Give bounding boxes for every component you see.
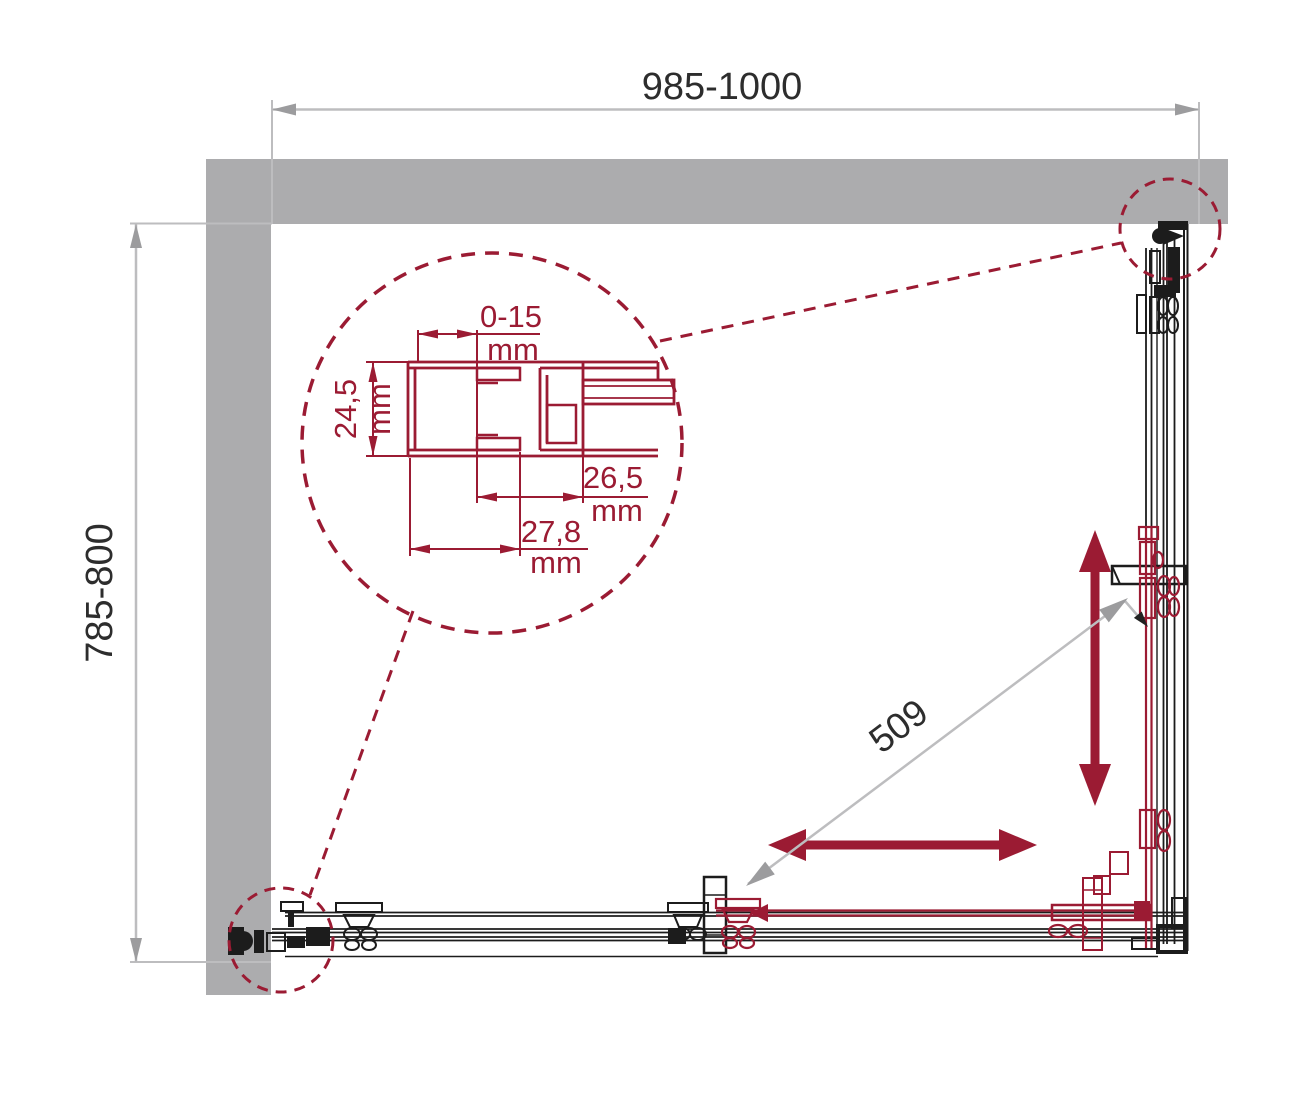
detail-dim-offset-b: 27,8 mm (410, 452, 588, 580)
depth-dimension-label: 785-800 (79, 523, 121, 662)
detail-depth-value: 24,5 (328, 379, 363, 439)
fixed-panel-right (1112, 221, 1188, 952)
walls (206, 159, 1228, 995)
roller-front-left (306, 903, 382, 950)
door-corner-hardware (1049, 878, 1150, 950)
diagonal-arrow-lower (746, 862, 775, 886)
roller-door-right-lower (1140, 810, 1170, 851)
profile-detail-drawing (408, 362, 674, 456)
detail-offset-b-value: 27,8 (521, 514, 581, 549)
detail-offset-b-unit: mm (530, 545, 582, 580)
detail-offset-a-value: 26,5 (583, 460, 643, 495)
diagonal-arrow-upper (1099, 598, 1128, 622)
wall-left (206, 224, 271, 995)
slide-direction-arrow-horizontal (768, 829, 1037, 861)
corner-hardware-top-right (1150, 221, 1188, 297)
detail-dim-adjustment: 0-15 mm (418, 299, 542, 503)
detail-dim-depth: 24,5 mm (328, 362, 408, 456)
dimension-arrow-bottom (130, 938, 142, 962)
dimension-arrow-top (130, 224, 142, 248)
door-rail-sections-red (1094, 852, 1128, 894)
fixed-panel-front (228, 877, 1185, 957)
detail-offset-a-unit: mm (591, 493, 643, 528)
detail-leader-lines (310, 243, 1121, 895)
shower-enclosure-plan-drawing: 985-1000 785-800 (0, 0, 1300, 1114)
detail-adjustment-unit: mm (487, 332, 539, 367)
detail-adjustment-value: 0-15 (480, 299, 542, 334)
sliding-door-front (716, 878, 1152, 950)
glass-panel-section (583, 380, 674, 404)
wall-top (206, 159, 1228, 224)
dimension-arrow-right (1175, 104, 1199, 116)
width-dimension-label: 985-1000 (642, 66, 803, 108)
rail-end-bracket-left (281, 902, 303, 927)
technical-drawing-canvas: 985-1000 785-800 (0, 0, 1300, 1114)
detail-depth-unit: mm (362, 383, 397, 435)
dimension-arrow-left (272, 104, 296, 116)
slide-direction-arrow-vertical (1079, 530, 1111, 806)
